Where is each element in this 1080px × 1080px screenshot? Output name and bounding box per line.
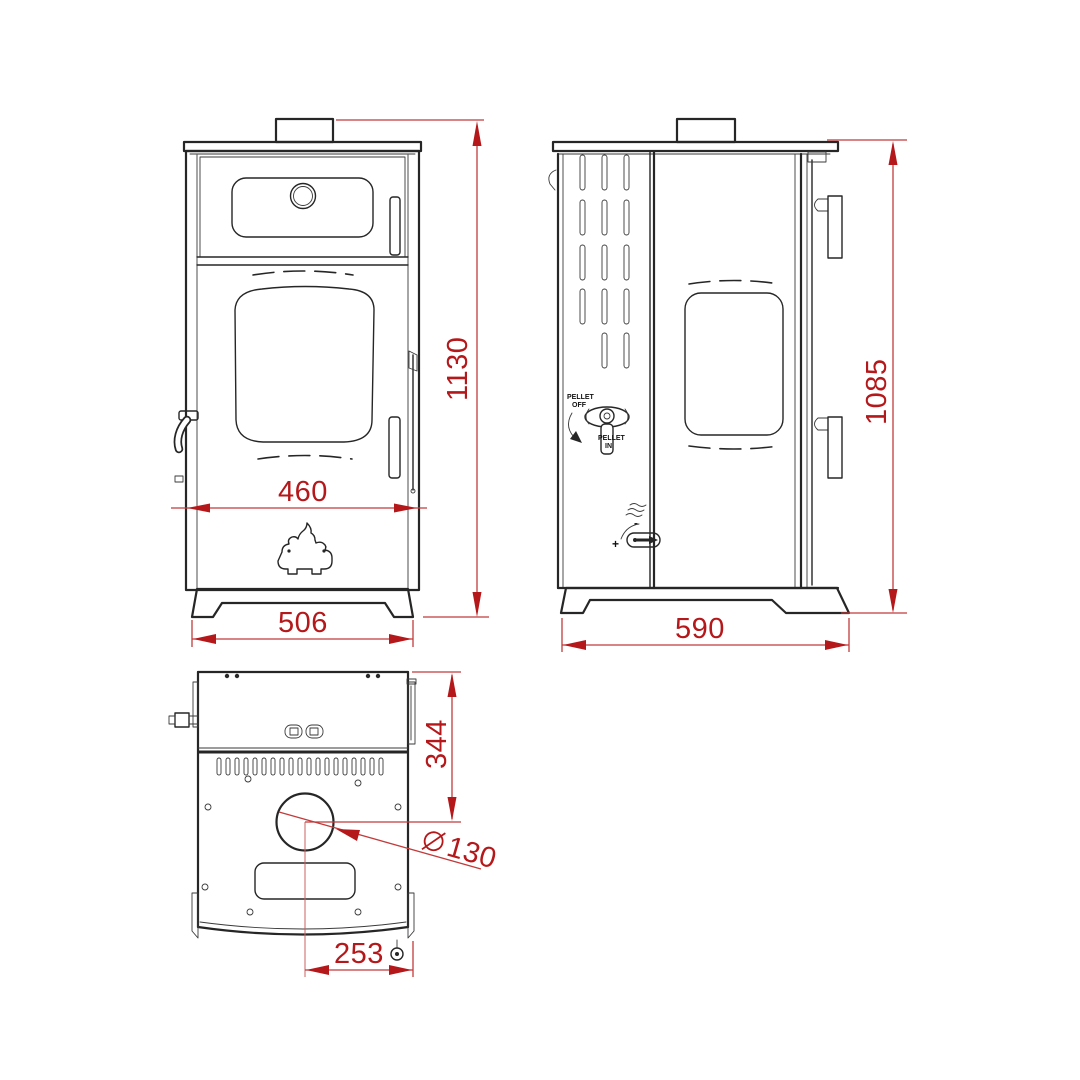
front-upper-door [200,157,405,257]
top-screws [202,776,401,915]
flue-diameter-value: 130 [443,831,500,876]
hinge-lower [828,417,842,478]
pellet-in-label-1: PELLET [598,435,626,442]
pellet-in-label-2: IN [605,443,612,450]
air-minus-label: - [634,516,638,530]
arrow-up-icon [889,141,898,165]
side-window [685,293,783,435]
top-dimensions: 344 130 253 [279,672,500,977]
upper-latch [390,197,400,255]
hinge-upper [828,196,842,258]
front-height-dimension: 1130 [442,337,474,401]
front-flue-collar [276,119,333,142]
arrow-up-icon [473,121,482,146]
top-front-curve [198,927,408,935]
side-flue-collar [677,119,735,142]
lower-latch [389,417,400,478]
pellet-off-label-2: OFF [572,402,587,409]
lid-clips [285,725,323,738]
leader-arrow-icon [336,829,360,841]
arrow-left-icon [193,634,216,644]
front-view [175,119,421,617]
side-dimensions: 1085 590 [562,140,907,652]
rear-vent-slots [580,155,629,368]
pellet-valve: PELLET OFF PELLET IN [567,394,629,454]
stove-drawing: 1130 460 506 PELLET OFF [0,0,1080,1080]
arrow-right-icon [825,640,848,650]
heat-waves-icon [630,504,646,507]
flame-emblem-icon [278,523,332,574]
air-control: - + [612,504,660,552]
front-body [186,151,419,590]
arrow-right-icon [394,504,417,513]
arrow-up-icon [448,673,457,697]
technical-drawing-canvas: 1130 460 506 PELLET OFF [0,0,1080,1080]
front-upper-vent-dashes [253,271,353,275]
front-oven-thermometer [291,184,316,209]
side-depth-dimension: 590 [675,613,725,645]
arrow-right-icon [389,965,412,975]
air-plus-label: + [612,537,619,551]
left-pin [175,476,183,482]
top-side-offset-dimension: 253 [334,938,384,970]
door-hinges [815,196,843,478]
top-handle [169,713,198,727]
arrow-down-icon [473,592,482,617]
side-height-dimension: 1085 [861,358,893,425]
front-fire-window [235,287,374,443]
top-vent-slots [217,758,383,775]
arrow-left-icon [306,965,329,975]
rear-hook [549,170,556,190]
side-view: PELLET OFF PELLET IN - + [549,119,849,613]
side-base [561,588,849,613]
arrow-down-icon [889,589,898,613]
arrow-left-icon [563,640,586,650]
front-lower-vent-dashes [258,456,352,460]
arrow-right-icon [389,634,412,644]
arrow-left-icon [187,504,210,513]
front-base-width-dimension: 506 [278,607,328,639]
arrow-down-icon [448,797,457,821]
front-top-plate [184,142,421,151]
top-rod [407,679,416,744]
top-flue-offset-dimension: 344 [421,719,453,769]
flue-diameter-label: 130 [420,824,500,875]
pellet-off-label-1: PELLET [567,394,595,401]
side-top-plate [553,142,838,151]
front-width-dimension: 460 [278,476,328,508]
